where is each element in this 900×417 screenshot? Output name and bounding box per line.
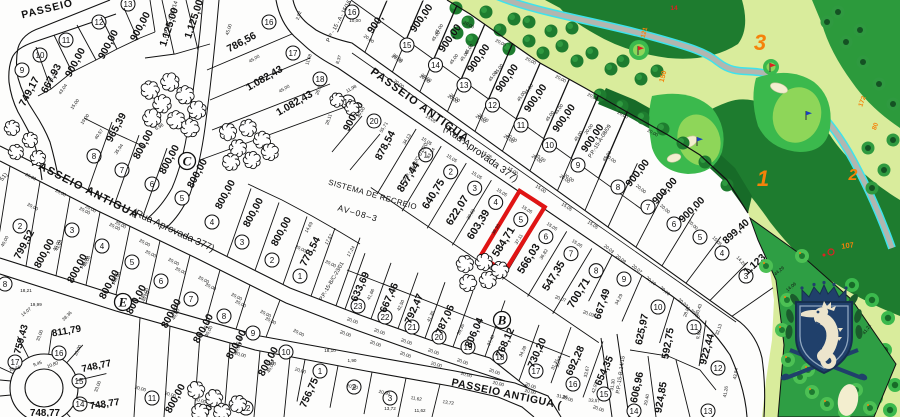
svg-text:4: 4 (100, 242, 105, 251)
svg-text:20: 20 (370, 117, 379, 126)
svg-text:748,77: 748,77 (30, 408, 61, 417)
svg-text:12: 12 (714, 364, 723, 373)
svg-text:9: 9 (20, 66, 25, 75)
svg-text:11: 11 (148, 394, 157, 403)
svg-text:8: 8 (616, 183, 621, 192)
svg-text:4: 4 (720, 249, 725, 258)
svg-text:6: 6 (159, 277, 164, 286)
svg-text:4: 4 (493, 198, 498, 207)
svg-text:B: B (497, 313, 507, 328)
svg-text:18,10: 18,10 (324, 348, 336, 353)
svg-text:13: 13 (704, 407, 713, 416)
svg-text:8: 8 (92, 152, 97, 161)
svg-text:1,90: 1,90 (348, 358, 357, 363)
svg-text:10: 10 (545, 141, 554, 150)
svg-text:15: 15 (75, 377, 84, 386)
svg-text:5: 5 (130, 258, 135, 267)
svg-text:5: 5 (698, 233, 703, 242)
svg-text:10: 10 (654, 303, 663, 312)
svg-text:7: 7 (189, 295, 194, 304)
svg-text:17: 17 (289, 49, 298, 58)
svg-text:11,62: 11,62 (414, 408, 426, 413)
svg-text:2: 2 (18, 222, 23, 231)
svg-text:7: 7 (569, 249, 574, 258)
svg-text:18: 18 (316, 75, 325, 84)
svg-text:13: 13 (124, 0, 133, 9)
svg-text:9: 9 (251, 329, 256, 338)
svg-text:7: 7 (120, 166, 125, 175)
svg-text:18,21: 18,21 (20, 288, 32, 293)
svg-text:16: 16 (569, 380, 578, 389)
svg-text:4: 4 (210, 218, 215, 227)
svg-text:33,57: 33,57 (588, 398, 600, 404)
svg-text:3: 3 (754, 30, 766, 55)
svg-text:13: 13 (460, 81, 469, 90)
svg-text:6: 6 (544, 232, 549, 241)
svg-text:E: E (118, 295, 128, 310)
svg-text:2: 2 (448, 168, 453, 177)
svg-text:14: 14 (630, 407, 639, 416)
svg-text:5: 5 (180, 194, 185, 203)
svg-text:11: 11 (517, 121, 526, 130)
svg-text:3: 3 (240, 238, 245, 247)
svg-text:16: 16 (265, 18, 274, 27)
svg-text:19,99: 19,99 (30, 302, 42, 307)
svg-text:15: 15 (403, 41, 412, 50)
svg-text:9: 9 (576, 161, 581, 170)
svg-text:8: 8 (222, 312, 227, 321)
svg-text:10: 10 (282, 348, 291, 357)
svg-text:9: 9 (622, 275, 627, 284)
svg-text:14: 14 (670, 5, 678, 12)
svg-text:11: 11 (62, 36, 71, 45)
svg-text:5: 5 (519, 215, 524, 224)
svg-text:12: 12 (95, 18, 104, 27)
svg-text:3: 3 (70, 226, 75, 235)
svg-text:2: 2 (270, 256, 275, 265)
svg-text:10,00: 10,00 (349, 18, 361, 23)
svg-text:6: 6 (672, 220, 677, 229)
svg-text:13,72: 13,72 (384, 406, 396, 411)
svg-text:7: 7 (646, 203, 651, 212)
svg-text:2: 2 (848, 167, 858, 184)
svg-text:15: 15 (600, 390, 609, 399)
svg-text:8: 8 (3, 280, 8, 289)
svg-text:1: 1 (318, 367, 323, 376)
svg-text:107: 107 (841, 240, 855, 251)
svg-text:C: C (183, 154, 192, 169)
svg-text:8: 8 (594, 267, 599, 276)
svg-text:3: 3 (472, 184, 477, 193)
svg-text:1: 1 (298, 272, 303, 281)
svg-text:14: 14 (431, 61, 440, 70)
svg-text:12: 12 (488, 101, 497, 110)
svg-text:1: 1 (757, 166, 769, 191)
svg-text:16: 16 (55, 349, 64, 358)
